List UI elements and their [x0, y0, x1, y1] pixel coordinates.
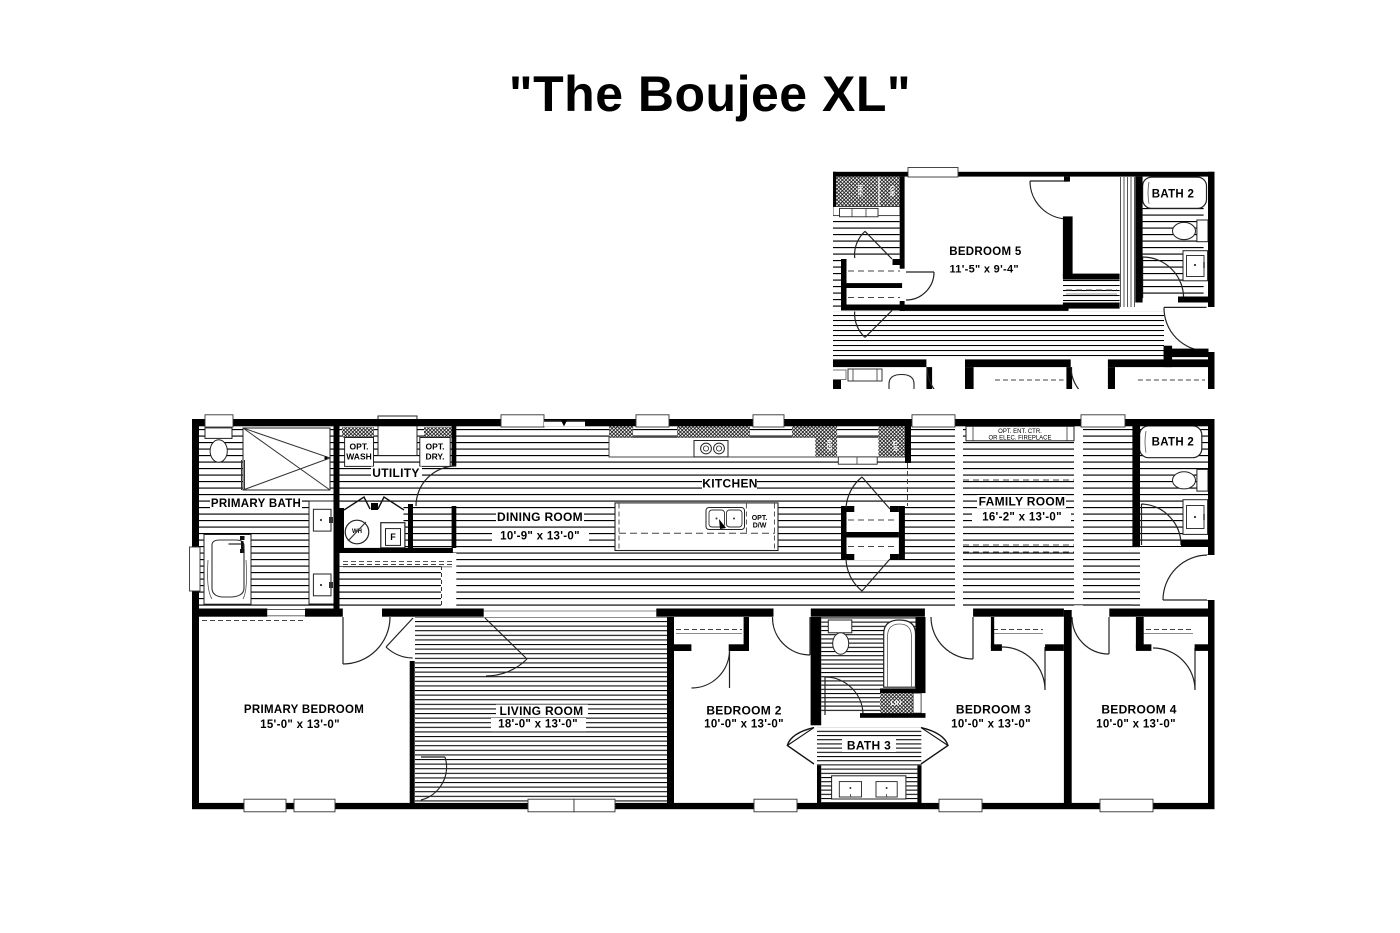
svg-text:FAMILY ROOM: FAMILY ROOM [979, 495, 1066, 509]
svg-text:O/R: O/R [888, 186, 894, 197]
svg-text:10'-9" x 13'-0": 10'-9" x 13'-0" [500, 531, 580, 543]
svg-text:BEDROOM 2: BEDROOM 2 [706, 704, 781, 718]
svg-text:PRIMARY BATH: PRIMARY BATH [211, 498, 301, 510]
svg-text:BATH 3: BATH 3 [847, 739, 891, 753]
svg-text:BEDROOM 5: BEDROOM 5 [949, 246, 1022, 258]
svg-text:REF.: REF. [856, 184, 862, 197]
svg-text:OPT.: OPT. [426, 442, 445, 452]
svg-text:BEDROOM 3: BEDROOM 3 [956, 703, 1031, 717]
svg-text:OPT. ENT. CTR.: OPT. ENT. CTR. [998, 429, 1042, 435]
svg-text:LIN: LIN [891, 700, 902, 707]
svg-text:15'-0" x 13'-0": 15'-0" x 13'-0" [260, 719, 340, 731]
svg-text:"The Boujee XL": "The Boujee XL" [509, 66, 911, 122]
svg-text:10'-0" x 13'-0": 10'-0" x 13'-0" [704, 718, 784, 730]
svg-text:16'-2" x 13'-0": 16'-2" x 13'-0" [982, 511, 1062, 523]
svg-text:DRY.: DRY. [425, 452, 444, 462]
svg-text:UTILITY: UTILITY [372, 466, 419, 480]
svg-text:18'-0" x 13'-0": 18'-0" x 13'-0" [498, 719, 578, 731]
svg-text:F: F [390, 532, 396, 542]
svg-text:10'-0" x 13'-0": 10'-0" x 13'-0" [951, 719, 1031, 731]
svg-text:KITCHEN: KITCHEN [702, 477, 757, 491]
svg-text:O/R: O/R [891, 441, 897, 452]
svg-text:WASH: WASH [346, 452, 372, 462]
svg-text:DINING ROOM: DINING ROOM [497, 510, 583, 524]
svg-text:BATH 2: BATH 2 [1152, 436, 1194, 448]
svg-text:BATH 2: BATH 2 [1152, 188, 1194, 200]
svg-text:11'-5" x 9'-4": 11'-5" x 9'-4" [949, 263, 1018, 275]
svg-text:10'-0" x 13'-0": 10'-0" x 13'-0" [1096, 719, 1176, 731]
svg-text:BEDROOM 4: BEDROOM 4 [1101, 703, 1176, 717]
svg-text:LIVING ROOM: LIVING ROOM [500, 704, 584, 718]
svg-text:D/W: D/W [753, 523, 767, 530]
svg-text:OPT.: OPT. [752, 515, 768, 522]
svg-text:OR ELEC. FIREPLACE: OR ELEC. FIREPLACE [988, 435, 1051, 441]
svg-text:OPT.: OPT. [350, 442, 369, 452]
svg-text:PRIMARY BEDROOM: PRIMARY BEDROOM [244, 704, 364, 716]
svg-text:REF.: REF. [825, 439, 831, 452]
